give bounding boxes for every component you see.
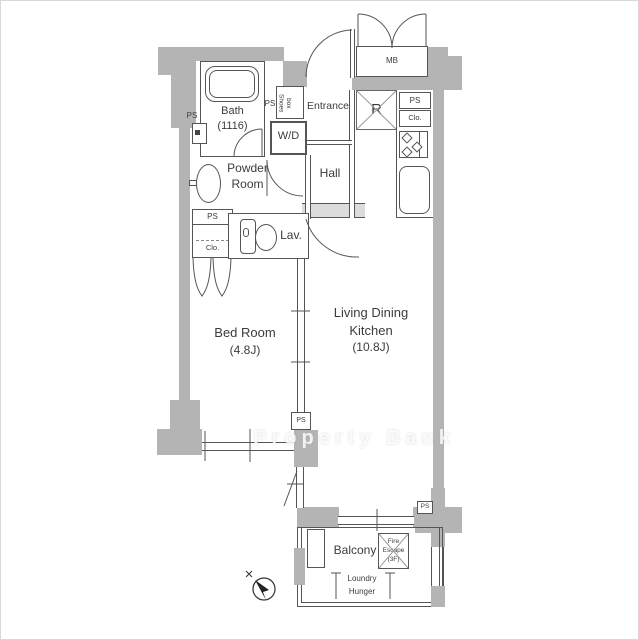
entrance-door-arc [306, 30, 352, 77]
powder-door-arc [267, 160, 303, 196]
compass-icon [246, 571, 275, 600]
closet-door-arc-left [193, 258, 211, 296]
partition-ticks [291, 311, 310, 362]
meter-box-door-leaves [358, 14, 426, 46]
corner-window-diagonal [284, 471, 303, 506]
ldk-door-arc [306, 219, 359, 257]
watermark: Property Bank [228, 427, 480, 455]
closet-door-arc-right [213, 258, 231, 296]
fire-escape-cross [379, 534, 408, 568]
laundry-pole-icons [331, 573, 395, 599]
bath-door-arc [234, 129, 262, 157]
refrigerator-cross [357, 91, 396, 129]
linework-overlay [0, 0, 639, 640]
meter-box-door-arc-right [392, 14, 426, 48]
meter-box-door-arc-left [358, 14, 392, 48]
floor-plan: MB R PS Clo. Shoes box Entrance Hall W/D… [0, 0, 639, 640]
